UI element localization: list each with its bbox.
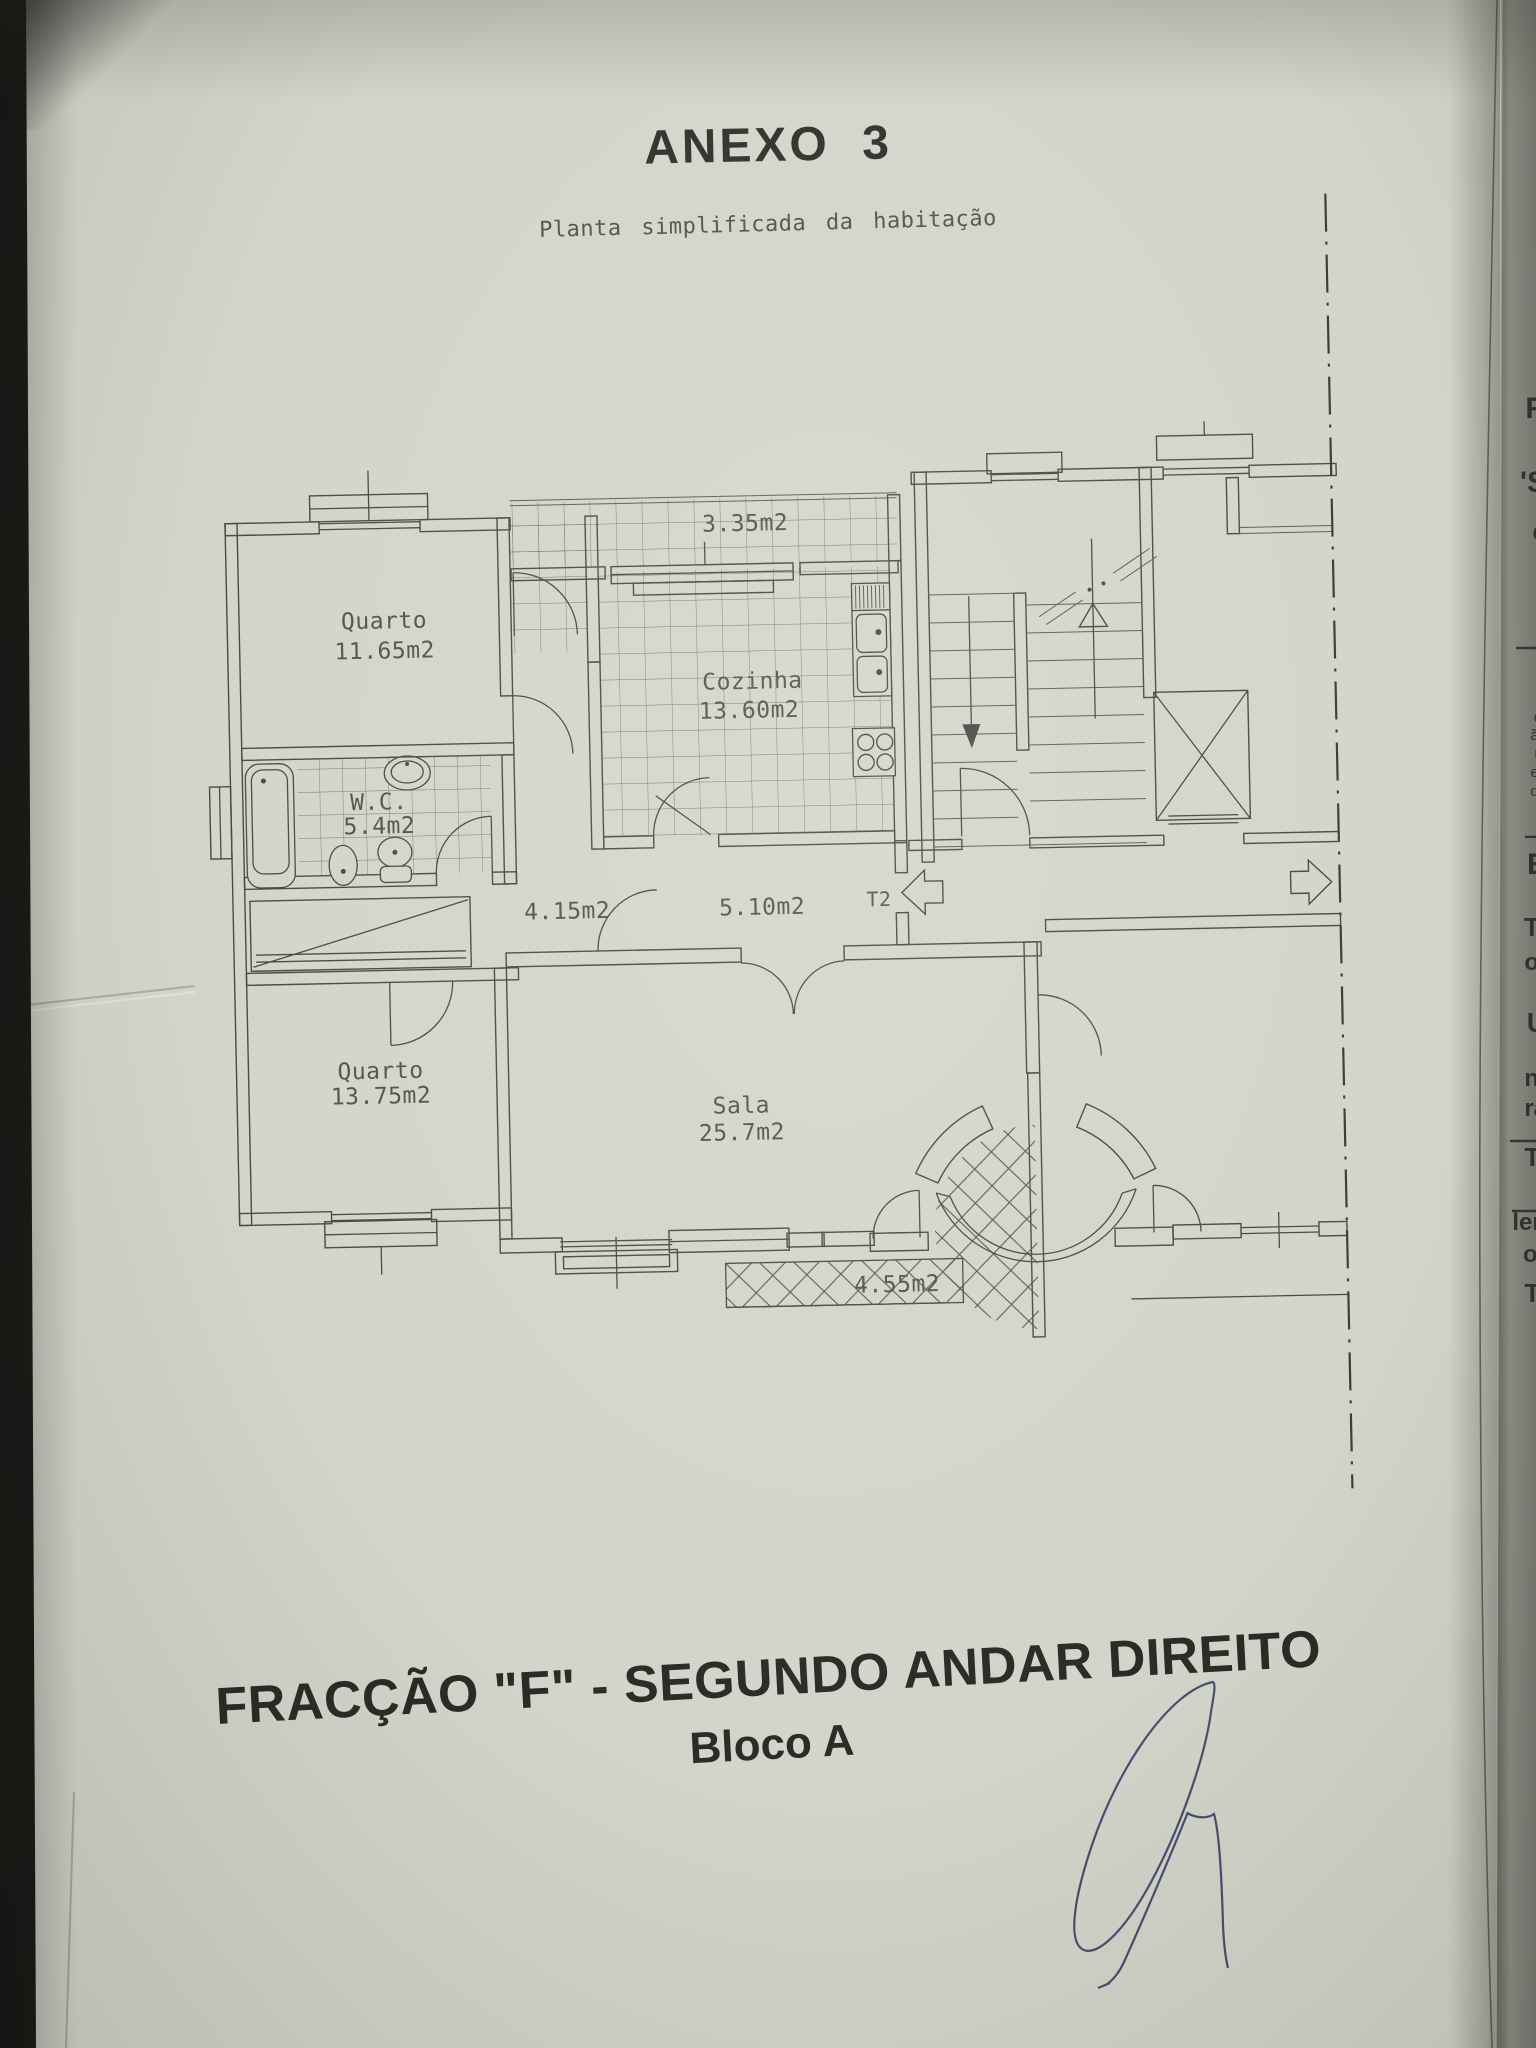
room-label-cozinha-name: Cozinha xyxy=(702,668,803,696)
kitchen-fixtures xyxy=(849,583,895,777)
zone-label-455: 4.55m2 xyxy=(854,1271,941,1299)
zone-label-510: 5.10m2 xyxy=(719,894,806,922)
room-label-quarto2-name: Quarto xyxy=(337,1058,424,1086)
svg-text:en: en xyxy=(1530,764,1536,781)
svg-text:ra: ra xyxy=(1524,1095,1536,1122)
svg-text:—: — xyxy=(1525,823,1536,848)
svg-text:e: e xyxy=(1533,516,1536,546)
closet xyxy=(250,897,471,972)
floor-plan-drawing: Quarto 11.65m2 3.35m2 Cozinha 13.60m2 W.… xyxy=(198,194,1358,1512)
room-label-quarto1-name: Quarto xyxy=(341,608,428,636)
zone-label-335: 3.35m2 xyxy=(702,510,789,538)
entry-arrow-left xyxy=(901,870,943,915)
svg-text:Tl: Tl xyxy=(1524,912,1536,942)
stairs xyxy=(928,537,1163,847)
svg-text:len: len xyxy=(1512,1209,1536,1236)
scanned-document-page: Quarto 11.65m2 3.35m2 Cozinha 13.60m2 W.… xyxy=(0,0,1536,2048)
type-label-t2: T2 xyxy=(866,887,892,912)
entry-arrow-right xyxy=(1290,860,1332,905)
room-label-cozinha-area: 13.60m2 xyxy=(699,697,800,725)
room-label-quarto1-area: 11.65m2 xyxy=(334,637,435,665)
elevator xyxy=(1154,690,1251,824)
room-label-sala-area: 25.7m2 xyxy=(699,1119,786,1147)
bidet xyxy=(329,845,358,886)
svg-text:or: or xyxy=(1523,1241,1536,1268)
svg-text:nt: nt xyxy=(1524,1065,1536,1092)
svg-text:do: do xyxy=(1530,783,1536,800)
under-page-strip: R'SeII3orãontendoa—ETlo:UntraTilenorTi xyxy=(1450,0,1536,2048)
svg-text:ão: ão xyxy=(1530,727,1536,744)
svg-text:E: E xyxy=(1527,848,1536,881)
room-label-sala-name: Sala xyxy=(712,1092,770,1119)
svg-text:o:: o: xyxy=(1524,949,1536,976)
svg-text:Ti: Ti xyxy=(1524,1278,1536,1308)
room-label-quarto2-area: 13.75m2 xyxy=(331,1083,432,1111)
svg-text:Ti: Ti xyxy=(1524,1142,1536,1172)
svg-text:R: R xyxy=(1525,392,1536,425)
room-label-wc-name: W.C. xyxy=(350,789,408,816)
room-label-wc-area: 5.4m2 xyxy=(343,813,415,840)
svg-text:'S: 'S xyxy=(1520,466,1536,499)
zone-label-415: 4.15m2 xyxy=(524,898,611,926)
svg-text:U: U xyxy=(1527,1007,1536,1038)
stairs-down-arrow xyxy=(962,724,980,748)
